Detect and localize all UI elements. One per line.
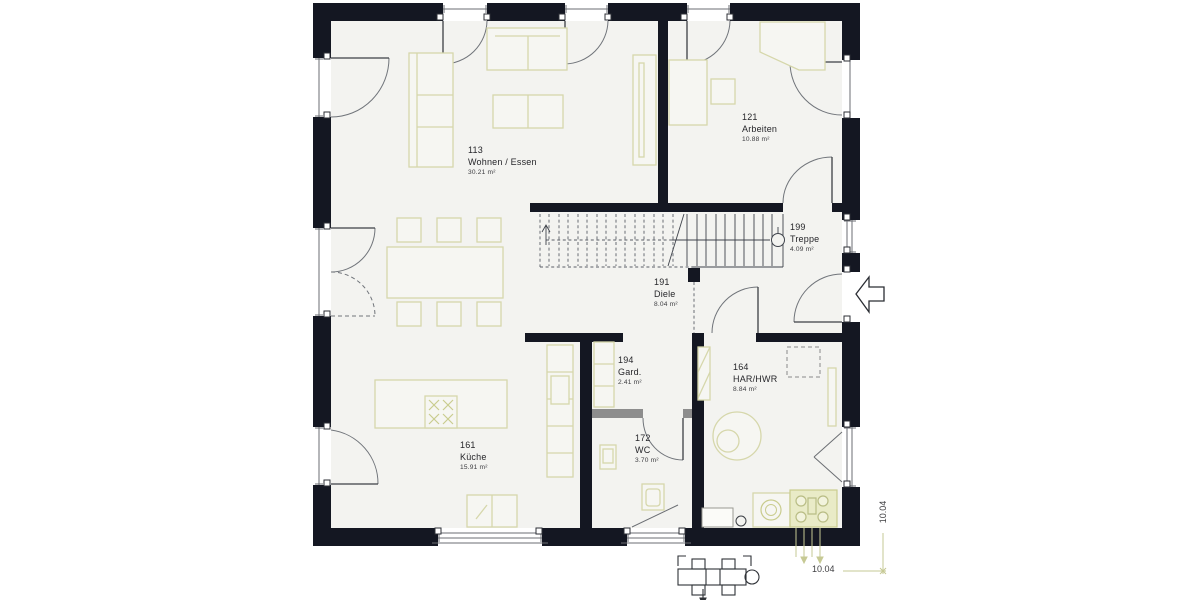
room-label-diele: 191 Diele 8.04 m² bbox=[654, 277, 678, 309]
dimension-right: 10.04 bbox=[878, 495, 888, 529]
room-label-gard: 194 Gard. 2.41 m² bbox=[618, 355, 642, 387]
dimension-bottom: 10.04 bbox=[812, 564, 835, 574]
entrance-arrow-icon bbox=[856, 277, 884, 312]
room-label-arbeiten: 121 Arbeiten 10.88 m² bbox=[742, 112, 777, 144]
furniture-wardrobe bbox=[594, 342, 614, 407]
outdoor-bench-symbol bbox=[678, 556, 759, 600]
floor-plan-drawing bbox=[0, 0, 1200, 600]
room-label-treppe: 199 Treppe 4.09 m² bbox=[790, 222, 819, 254]
room-label-wc: 172 WC 3.70 m² bbox=[635, 433, 659, 465]
room-label-har: 164 HAR/HWR 8.84 m² bbox=[733, 362, 777, 394]
furniture-dining-set bbox=[387, 218, 503, 326]
room-label-wohnen: 113 Wohnen / Essen 30.21 m² bbox=[468, 145, 537, 177]
floor-plan-page: 113 Wohnen / Essen 30.21 m² 121 Arbeiten… bbox=[0, 0, 1200, 600]
furniture-tv-board bbox=[633, 55, 656, 165]
room-label-kueche: 161 Küche 15.91 m² bbox=[460, 440, 488, 472]
